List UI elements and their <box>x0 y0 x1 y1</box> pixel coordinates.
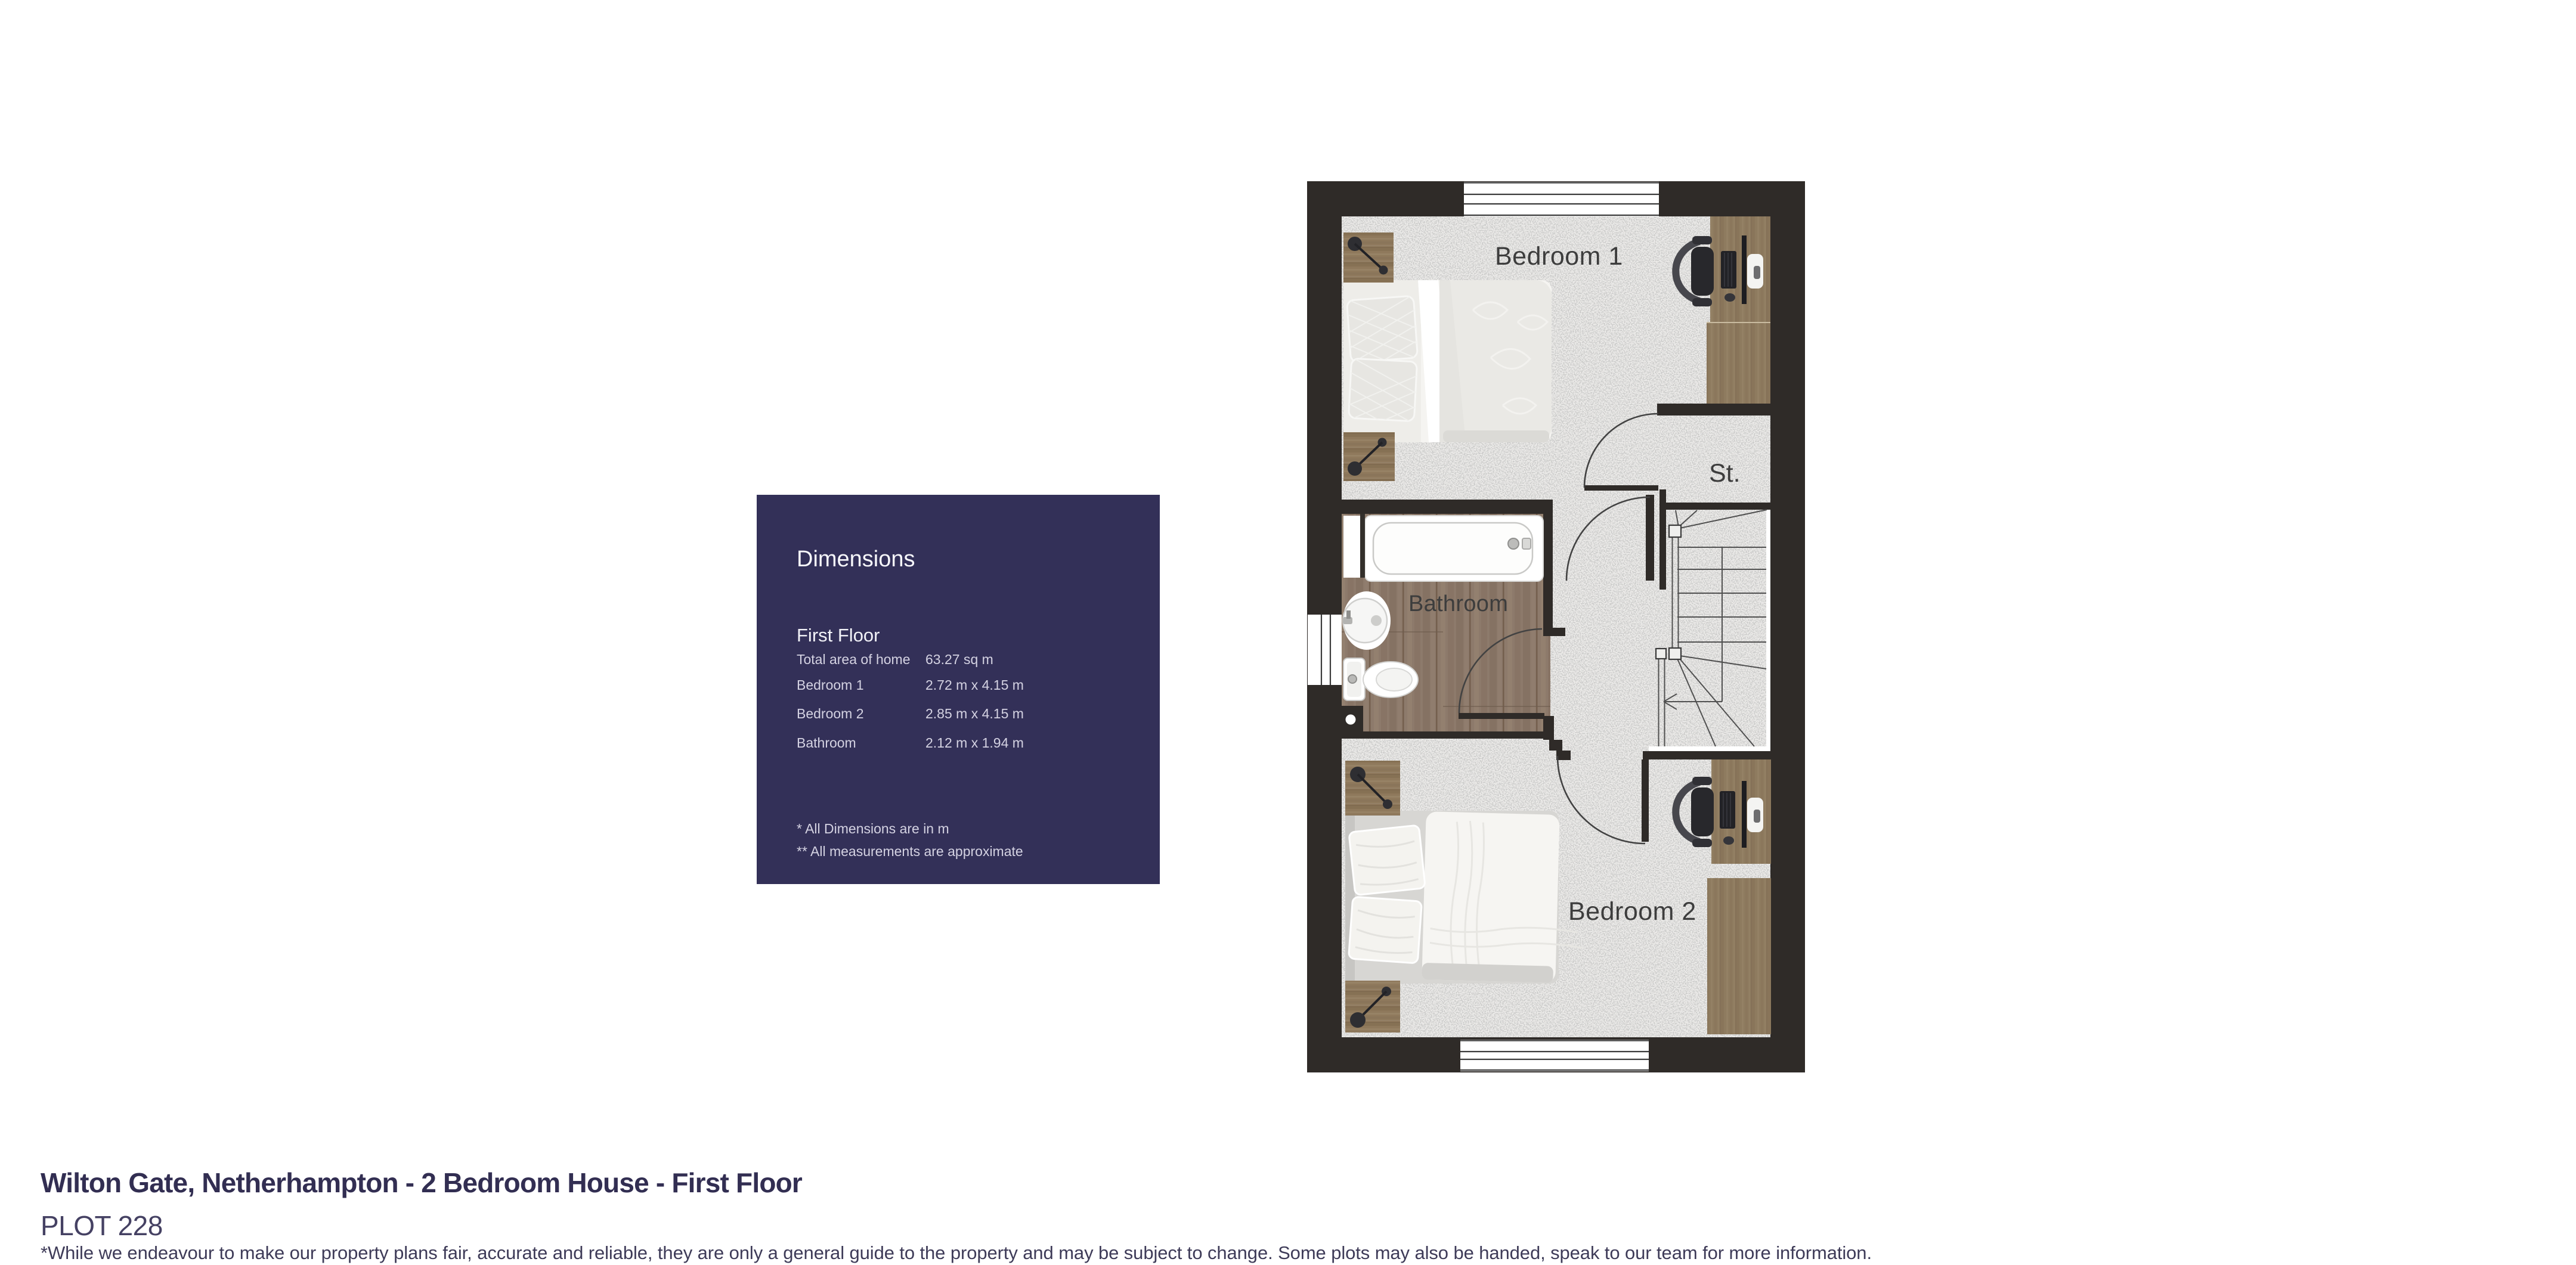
svg-text:*While we endeavour to make ou: *While we endeavour to make our property… <box>41 1242 1872 1263</box>
svg-text:Bedroom 1: Bedroom 1 <box>797 677 864 693</box>
svg-text:First Floor: First Floor <box>797 625 880 646</box>
svg-text:Total area of home: Total area of home <box>797 652 911 667</box>
svg-text:2.72 m x 4.15 m: 2.72 m x 4.15 m <box>925 677 1024 693</box>
svg-text:St.: St. <box>1709 459 1741 488</box>
svg-text:63.27 sq m: 63.27 sq m <box>925 652 993 667</box>
svg-text:Dimensions: Dimensions <box>797 547 915 572</box>
svg-text:PLOT 228: PLOT 228 <box>41 1210 163 1241</box>
svg-text:** All measurements are approx: ** All measurements are approximate <box>797 844 1023 859</box>
svg-text:Bedroom 1: Bedroom 1 <box>1495 242 1623 271</box>
svg-text:Wilton Gate, Netherhampton - 2: Wilton Gate, Netherhampton - 2 Bedroom H… <box>41 1167 803 1198</box>
svg-text:* All Dimensions are in m: * All Dimensions are in m <box>797 821 949 836</box>
svg-text:2.12 m x 1.94 m: 2.12 m x 1.94 m <box>925 735 1024 751</box>
svg-text:2.85 m x 4.15 m: 2.85 m x 4.15 m <box>925 706 1024 721</box>
svg-text:Bathroom: Bathroom <box>1408 591 1508 616</box>
svg-text:Bathroom: Bathroom <box>797 735 856 751</box>
svg-text:Bedroom 2: Bedroom 2 <box>797 706 864 721</box>
svg-text:Bedroom 2: Bedroom 2 <box>1568 897 1696 926</box>
